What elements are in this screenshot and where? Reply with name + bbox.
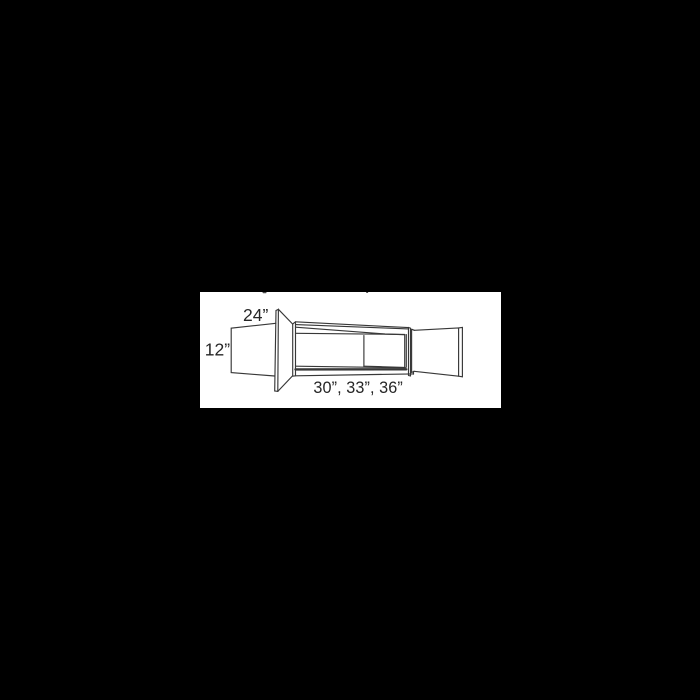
svg-text:30”, 33”, 36”: 30”, 33”, 36” [313, 379, 402, 397]
svg-text:24”: 24” [243, 305, 268, 325]
svg-text:12”: 12” [205, 340, 230, 360]
